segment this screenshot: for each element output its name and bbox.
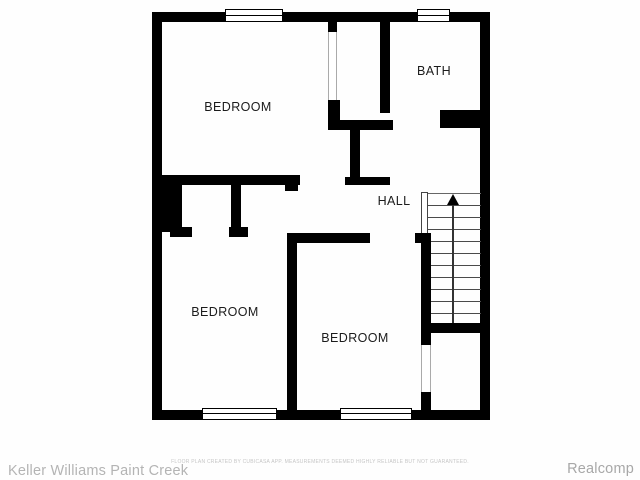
wall-bottom-right: [412, 410, 490, 420]
wall-top-left: [152, 12, 225, 22]
window-bottom-left-bedroom: [202, 408, 277, 420]
closet-opening: [328, 32, 337, 100]
understairs-closet-door-opening: [421, 345, 431, 392]
wall-small-closet-foot-right: [229, 227, 248, 237]
floor-plan-disclaimer: FLOOR PLAN CREATED BY CUBICASA APP. MEAS…: [171, 459, 469, 465]
window-top-bedroom: [225, 9, 283, 22]
mls-provider-brand: Realcomp: [567, 461, 634, 477]
room-label-bath: BATH: [417, 64, 451, 78]
wall-understairs-stub: [421, 392, 431, 410]
room-label-bedroom-bottom-left: BEDROOM: [191, 305, 258, 319]
room-label-bedroom-top: BEDROOM: [204, 100, 271, 114]
window-bottom-middle-bedroom: [340, 408, 412, 420]
wall-top-middle: [283, 12, 417, 22]
wall-closet-bottom: [328, 120, 393, 130]
wall-middle-bedroom-top: [287, 233, 370, 243]
wall-hall-wing: [350, 130, 360, 178]
room-label-hall: HALL: [378, 194, 411, 208]
listing-brokerage-brand: Keller Williams Paint Creek: [8, 463, 188, 479]
wall-closet-left-stub: [328, 21, 337, 32]
window-bath: [417, 9, 450, 22]
floor-plan-page: BEDROOM BATH HALL BEDROOM BEDROOM Keller…: [0, 0, 640, 480]
floor-plan: BEDROOM BATH HALL BEDROOM BEDROOM: [0, 0, 640, 445]
wall-bath-bottom: [440, 110, 481, 128]
stairs-up-arrow-icon: [447, 194, 459, 205]
wall-stairs-bottom: [421, 323, 481, 333]
room-label-bedroom-bottom-middle: BEDROOM: [321, 331, 388, 345]
wall-block-left: [152, 175, 182, 232]
wall-right: [480, 12, 490, 420]
door-jamb-top-bedroom: [285, 183, 298, 191]
wall-closet-left-lower: [328, 100, 340, 120]
stairs-direction-line: [452, 197, 454, 324]
wall-bath-left: [380, 21, 390, 113]
wall-bedroom-divider: [287, 233, 297, 420]
wall-hall-wing-foot: [345, 177, 390, 185]
wall-bottom-left: [152, 410, 202, 420]
stairs-open-rail: [421, 192, 428, 234]
wall-small-closet-foot-left: [170, 227, 192, 237]
